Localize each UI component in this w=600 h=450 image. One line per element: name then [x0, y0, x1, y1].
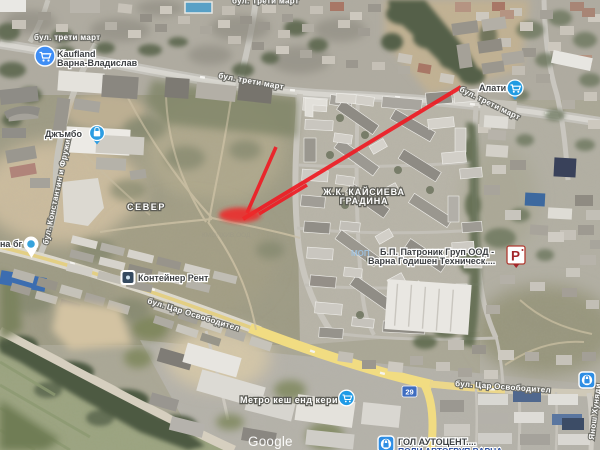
svg-text:на бг: на бг [0, 239, 23, 249]
svg-text:бул. Трети март: бул. Трети март [232, 0, 299, 6]
svg-text:Варна Годишен Техническ....: Варна Годишен Техническ.... [368, 256, 495, 266]
svg-text:Р: Р [511, 249, 520, 264]
svg-text:ГРАДИНА: ГРАДИНА [340, 196, 389, 206]
svg-text:Google: Google [248, 434, 293, 449]
svg-text:Контейнер Рент: Контейнер Рент [138, 273, 209, 283]
svg-text:СЕВЕР: СЕВЕР [127, 202, 166, 212]
svg-text:Метро кеш енд кери: Метро кеш енд кери [240, 395, 338, 405]
svg-text:Алати: Алати [479, 83, 506, 93]
svg-text:КМОПХИВ ООД: КМОПХИВ ООД [202, 232, 251, 239]
svg-text:бул. трети март: бул. трети март [34, 33, 100, 42]
svg-text:ПОЛИ АВТОГРУП ВАРНА: ПОЛИ АВТОГРУП ВАРНА [398, 446, 502, 450]
svg-text:29: 29 [405, 388, 413, 397]
svg-text:Джъмбо: Джъмбо [45, 129, 82, 139]
svg-text:Варна-Владислав: Варна-Владислав [57, 58, 138, 68]
